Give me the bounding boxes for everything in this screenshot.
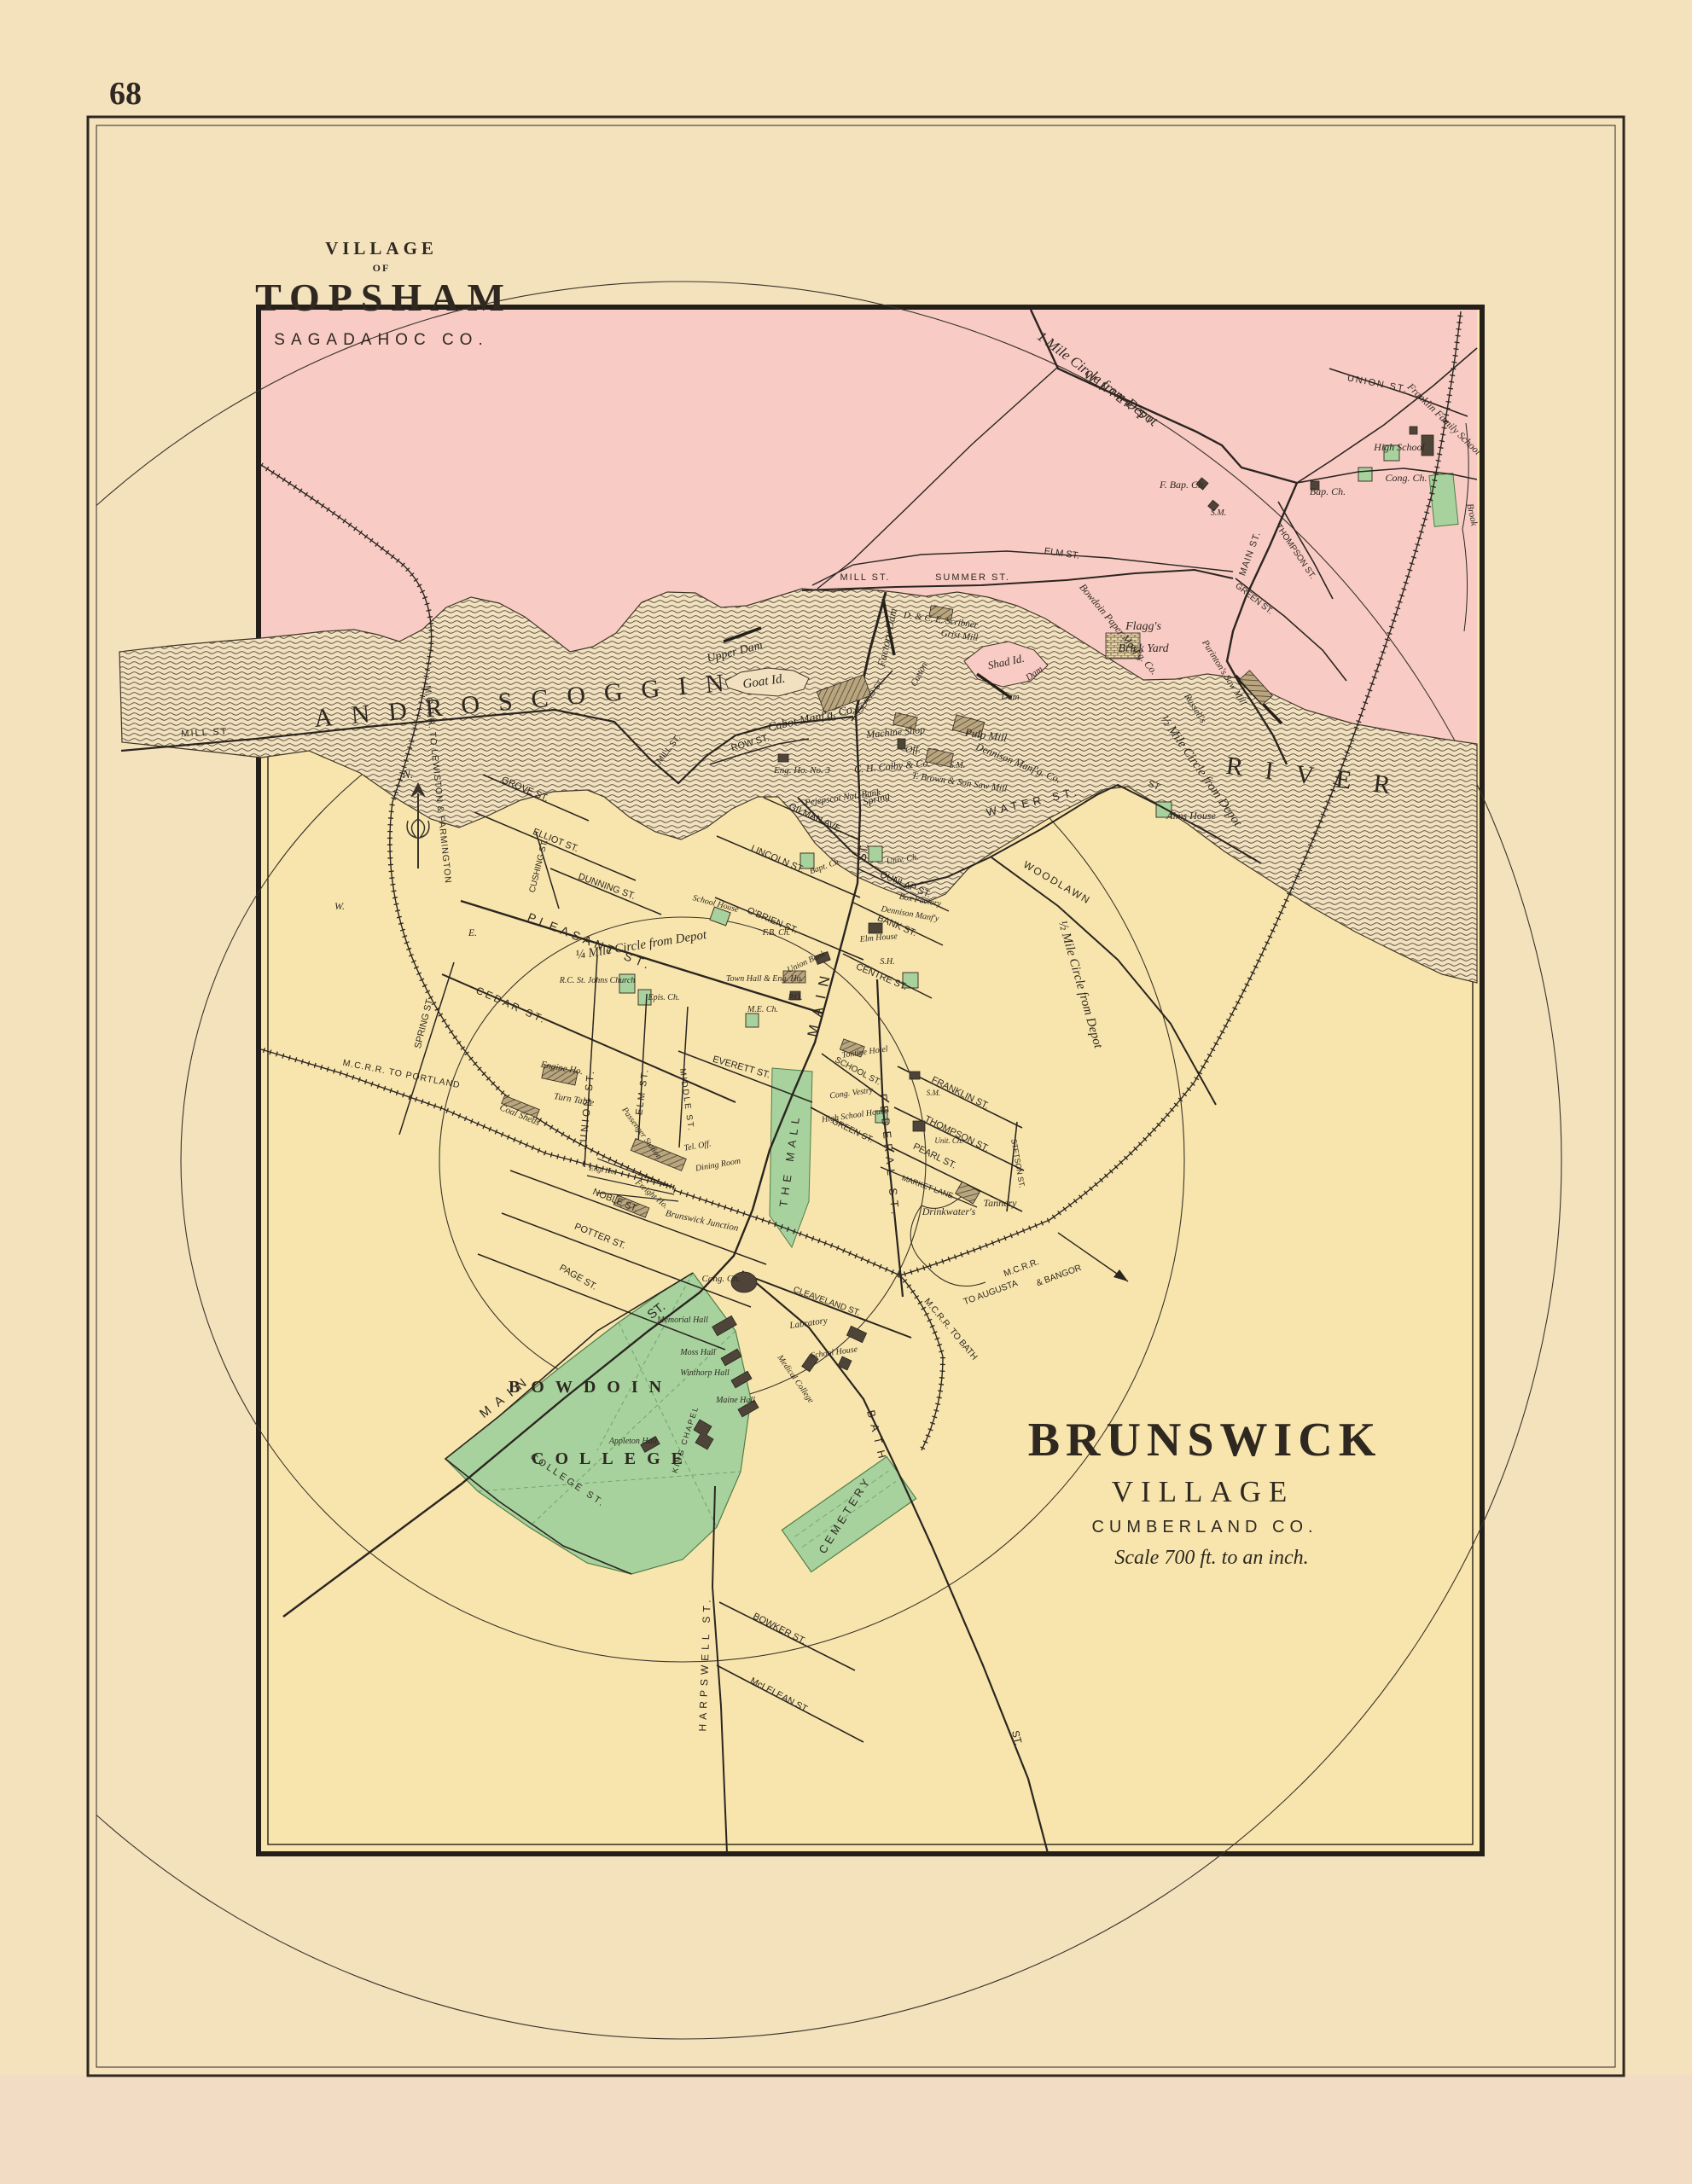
topsham-title-name: TOPSHAM	[255, 276, 513, 319]
page-margin-bottom	[0, 2075, 1692, 2184]
rc-church-label: R.C. St. Johns Church	[559, 976, 636, 985]
brick-yard-label: Brick Yard	[1118, 642, 1169, 655]
fb-church-label: F.B. Ch.	[762, 928, 791, 938]
tannery-label: Tannery	[984, 1197, 1018, 1209]
summer-st-label: SUMMER ST.	[935, 572, 1010, 583]
po-label: P.O.	[787, 993, 802, 1002]
me-church-plot	[746, 1014, 759, 1027]
w-label: W.	[334, 900, 345, 912]
topsham-title-of: OF	[373, 262, 391, 274]
brunswick-title-scale: Scale 700 ft. to an inch.	[1114, 1547, 1308, 1569]
maine-hall-label: Maine Hall	[715, 1396, 755, 1405]
topsham-title-village: VILLAGE	[325, 238, 438, 258]
sm-franklin-building	[910, 1072, 920, 1079]
sh-label: S.H.	[880, 957, 894, 967]
me-church-label: M.E. Ch.	[747, 1005, 778, 1014]
franklin-school-building	[1410, 427, 1417, 434]
eng-ho3-label: Eng. Ho. No. 3	[773, 765, 831, 775]
sm-franklin-label: S.M.	[927, 1089, 941, 1097]
high-school-topsham-label: High School	[1373, 441, 1425, 453]
office-label: Off.	[905, 743, 921, 755]
univ-church-plot	[869, 846, 882, 862]
town-hall-label: Town Hall & Eng. Ho.	[726, 974, 803, 984]
compass-n-label: N.	[402, 769, 414, 781]
sm-brunswick-label: S.M.	[950, 761, 965, 770]
college-label: COLLEGE	[532, 1449, 694, 1468]
drinkwater-label: Drinkwater's	[922, 1205, 976, 1217]
cong-church-brunswick-label: Cong. Ch.	[702, 1274, 741, 1284]
topsham-title-county: SAGADAHOC CO.	[274, 331, 488, 349]
map-canvas: 68	[0, 0, 1692, 2184]
alms-house-label: Alms House	[1166, 810, 1216, 822]
fbap-ch-label: F. Bap. Ch.	[1159, 479, 1206, 491]
sm-topsham-label: S.M.	[1211, 508, 1226, 518]
topsham-cong-church-plot	[1358, 468, 1372, 481]
mill-st-topsham-label: MILL ST.	[840, 572, 891, 583]
brunswick-title-county: CUMBERLAND CO.	[1091, 1518, 1317, 1536]
epis-church-label: Epis. Ch.	[648, 993, 680, 1002]
atlas-page: 68	[0, 0, 1692, 2184]
e-label: E.	[468, 926, 477, 938]
topsham-cemetery	[1429, 473, 1458, 527]
winthorp-hall-label: Winthorp Hall	[680, 1368, 730, 1378]
brunswick-title-name: BRUNSWICK	[1028, 1414, 1382, 1467]
brunswick-title-village: VILLAGE	[1112, 1475, 1295, 1508]
eng-ho3-building	[778, 754, 788, 762]
page-number: 68	[109, 76, 142, 112]
elm-house-building	[869, 923, 882, 933]
bap-ch-topsham-label: Bap. Ch.	[1310, 485, 1346, 497]
moss-hall-label: Moss Hall	[679, 1348, 716, 1357]
office-building	[898, 739, 905, 749]
memorial-hall-label: Memorial Hall	[656, 1316, 708, 1325]
cong-ch-topsham-label: Cong. Ch.	[1385, 472, 1427, 484]
dam2-label: Dam	[1000, 692, 1019, 702]
unit-church-label: Unit. Ch.	[934, 1136, 962, 1145]
flaggs-label: Flagg's	[1125, 620, 1161, 633]
bowdoin-label: BOWDOIN	[509, 1378, 672, 1397]
appleton-hall-label: Appleton Hall	[608, 1437, 658, 1446]
